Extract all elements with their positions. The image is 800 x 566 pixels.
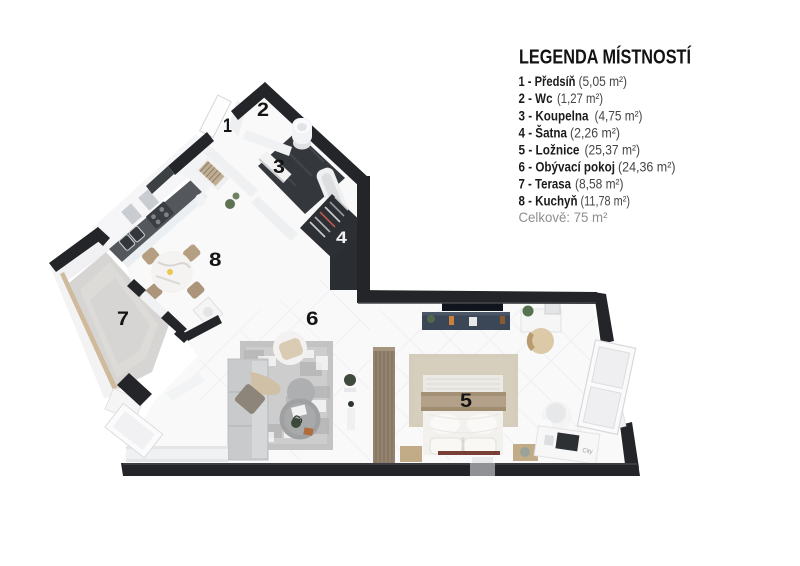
svg-text:(4,75 m²): (4,75 m²) — [595, 107, 643, 123]
svg-text:1 - Předsíň: 1 - Předsíň — [519, 73, 576, 89]
svg-text:8: 8 — [209, 249, 222, 271]
svg-text:4: 4 — [336, 228, 348, 247]
svg-text:8 - Kuchyň: 8 - Kuchyň — [519, 193, 578, 209]
svg-text:(8,58 m²): (8,58 m²) — [575, 176, 624, 192]
svg-text:(2,26 m²): (2,26 m²) — [570, 124, 620, 140]
svg-text:4 - Šatna: 4 - Šatna — [519, 123, 568, 140]
svg-text:2: 2 — [257, 100, 269, 121]
svg-text:1: 1 — [223, 116, 232, 137]
svg-text:3: 3 — [273, 157, 285, 178]
svg-text:7: 7 — [117, 308, 129, 330]
svg-text:6: 6 — [306, 308, 319, 330]
svg-text:(5,05 m²): (5,05 m²) — [579, 73, 628, 89]
svg-text:2 - Wc: 2 - Wc — [519, 90, 553, 106]
svg-text:5 - Ložnice: 5 - Ložnice — [519, 142, 580, 158]
svg-text:(24,36 m²): (24,36 m²) — [618, 159, 676, 175]
svg-text:(25,37 m²): (25,37 m²) — [585, 142, 641, 158]
svg-text:3 - Koupelna: 3 - Koupelna — [519, 107, 589, 123]
svg-text:(1,27 m²): (1,27 m²) — [557, 90, 603, 106]
svg-text:Celkově: 75 m²: Celkově: 75 m² — [519, 209, 608, 225]
svg-text:(11,78 m²): (11,78 m²) — [581, 193, 631, 209]
svg-text:7 - Terasa: 7 - Terasa — [519, 176, 572, 192]
svg-text:5: 5 — [460, 390, 472, 412]
svg-text:6 - Obývací pokoj: 6 - Obývací pokoj — [519, 159, 616, 175]
svg-text:LEGENDA MÍSTNOSTÍ: LEGENDA MÍSTNOSTÍ — [519, 46, 692, 69]
